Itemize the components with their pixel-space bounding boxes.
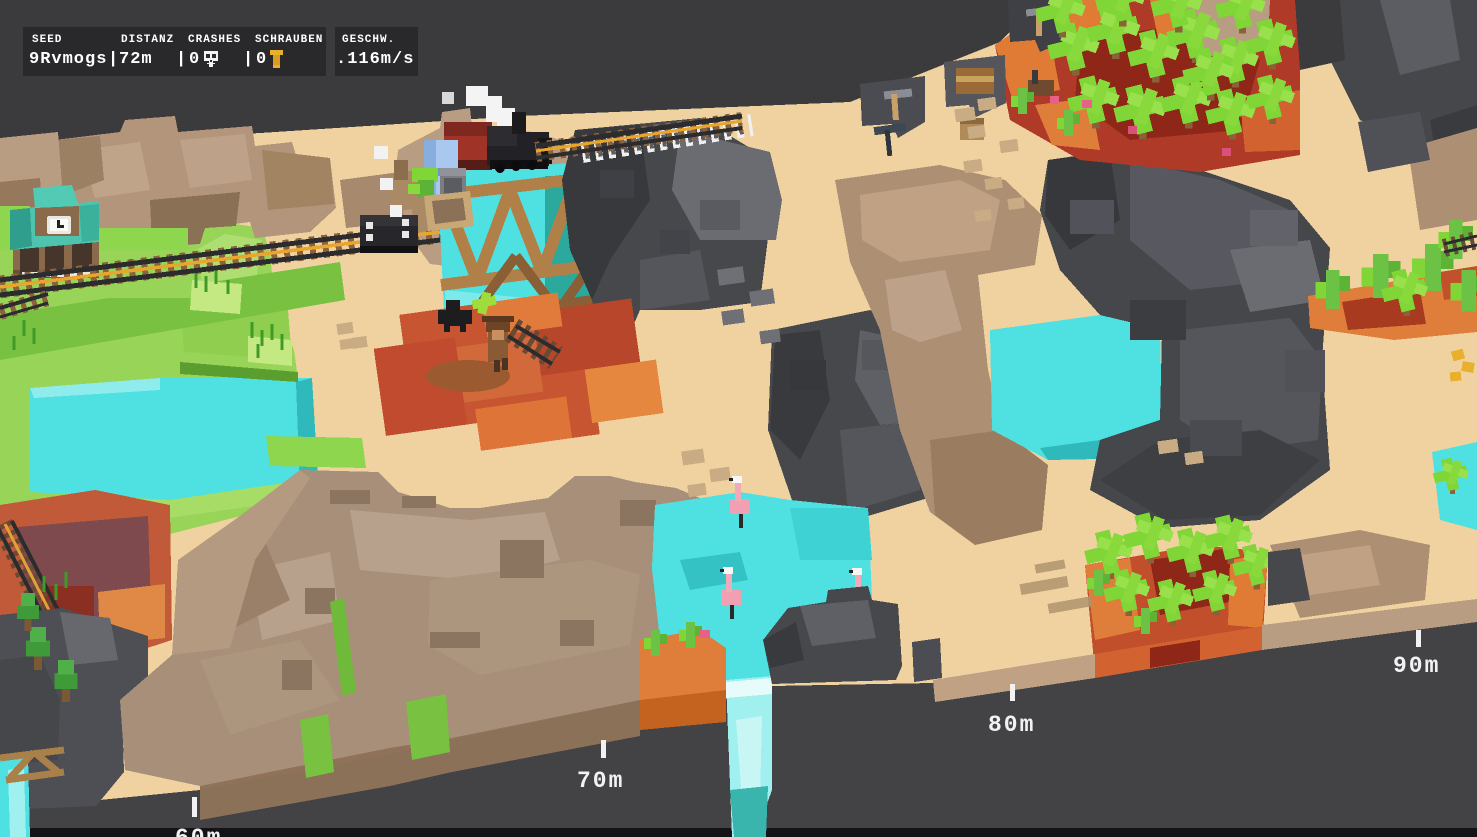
svg-text:80m: 80m bbox=[988, 712, 1035, 738]
svg-text:90m: 90m bbox=[1393, 653, 1440, 679]
svg-text:70m: 70m bbox=[577, 768, 624, 794]
svg-text:60m: 60m bbox=[175, 825, 222, 837]
